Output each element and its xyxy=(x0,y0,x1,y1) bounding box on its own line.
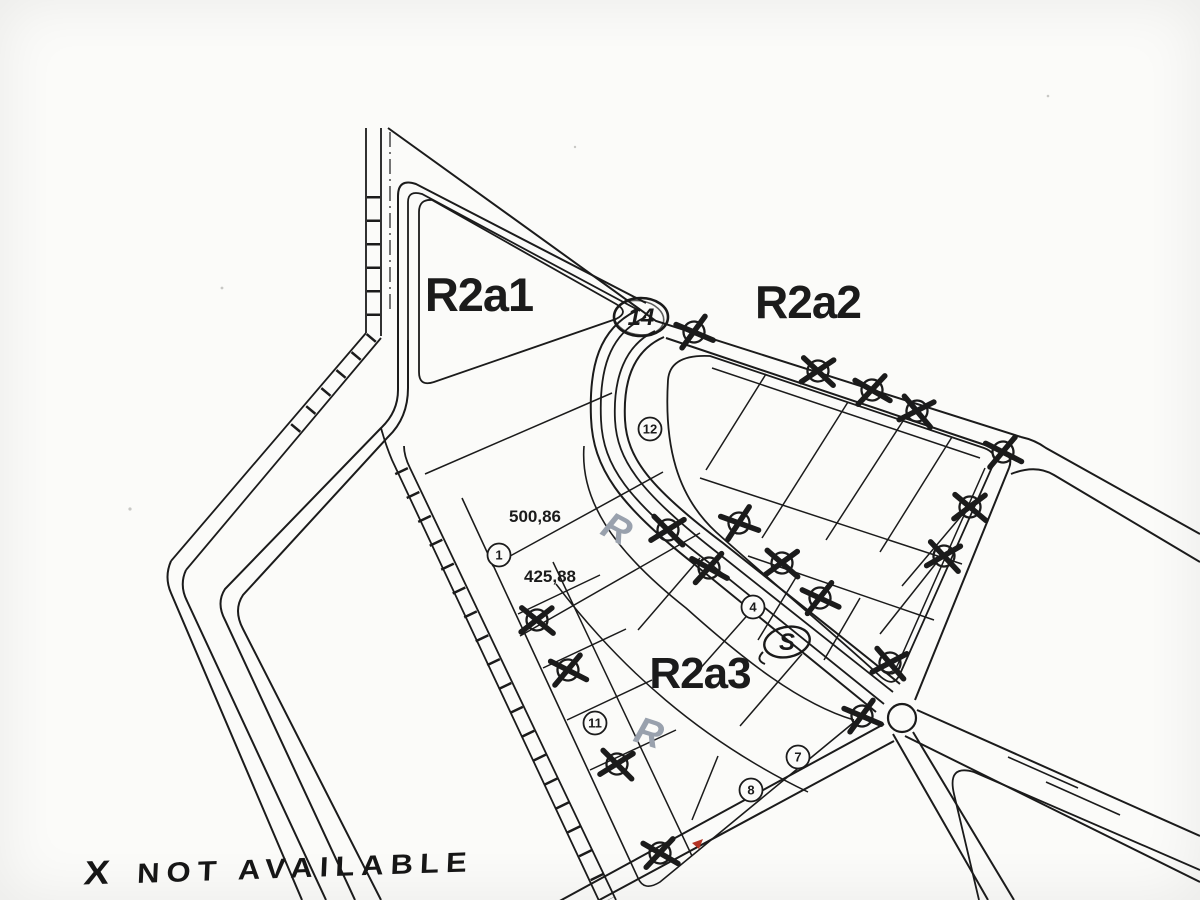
svg-text:4: 4 xyxy=(749,600,757,615)
scanned-plot-plan: R2a1R2a2R2a3 500,86425,88 12141178 14SRR… xyxy=(0,0,1200,900)
plot-number-11: 11 xyxy=(584,712,607,735)
roundabout xyxy=(888,704,916,732)
not-available-marker xyxy=(844,700,882,732)
not-available-marker xyxy=(800,356,836,386)
road-lines xyxy=(168,128,1200,900)
not-available-marker xyxy=(720,506,759,540)
not-available-marker xyxy=(650,514,687,545)
svg-text:1: 1 xyxy=(495,548,502,563)
plot-number-8: 8 xyxy=(740,779,763,802)
plan-drawing: R2a1R2a2R2a3 500,86425,88 12141178 14SRR xyxy=(0,0,1200,900)
legend-x-symbol: X xyxy=(82,854,111,893)
measurement-labels: 500,86425,88 xyxy=(509,507,576,586)
not-available-marker xyxy=(550,655,586,685)
svg-text:8: 8 xyxy=(747,783,754,798)
plot-number-4: 4 xyxy=(742,596,765,619)
measurement-label: 425,88 xyxy=(524,567,576,586)
svg-text:12: 12 xyxy=(643,422,657,437)
not-available-marker xyxy=(599,748,636,779)
zone-label-R2a3: R2a3 xyxy=(649,649,750,698)
not-available-marker xyxy=(520,606,555,634)
plot-number-12: 12 xyxy=(639,418,662,441)
pencil-r-mark: R xyxy=(595,504,639,554)
svg-text:7: 7 xyxy=(794,750,801,765)
svg-text:S: S xyxy=(779,629,795,656)
not-available-marker xyxy=(692,553,728,582)
not-available-marker xyxy=(855,376,890,405)
plot-number-7: 7 xyxy=(787,746,810,769)
handwritten-circled-s: S xyxy=(759,623,812,664)
svg-text:11: 11 xyxy=(588,716,602,731)
zone-label-R2a1: R2a1 xyxy=(425,268,533,321)
legend-text: NOT AVAILABLE xyxy=(137,846,475,890)
svg-text:14: 14 xyxy=(628,304,655,331)
plot-number-1: 1 xyxy=(488,544,511,567)
plot-subdivision-lines xyxy=(425,374,968,856)
not-available-marker xyxy=(953,493,988,522)
measurement-label: 500,86 xyxy=(509,507,561,526)
zone-label-R2a2: R2a2 xyxy=(755,276,861,328)
pencil-r-mark: R xyxy=(629,709,669,758)
not-available-marker xyxy=(926,540,964,572)
